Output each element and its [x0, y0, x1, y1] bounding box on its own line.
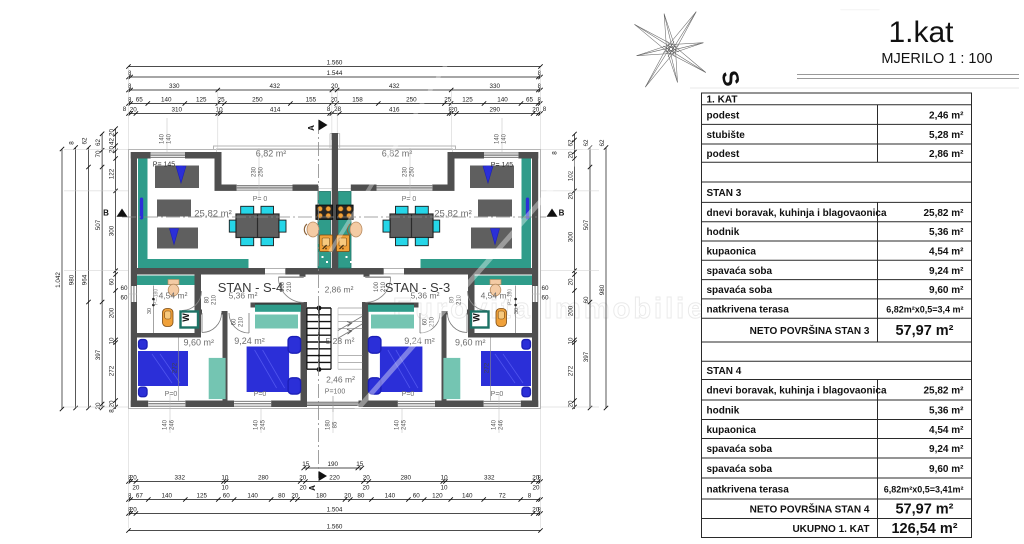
- svg-text:dnevi boravak, kuhinja i blago: dnevi boravak, kuhinja i blagovaonica: [707, 386, 887, 397]
- svg-text:20: 20: [331, 83, 339, 90]
- svg-text:9,24 m²: 9,24 m²: [929, 266, 964, 277]
- svg-text:250: 250: [406, 96, 417, 103]
- svg-text:42: 42: [108, 138, 115, 146]
- svg-text:8: 8: [538, 83, 542, 90]
- svg-text:6,82 m²: 6,82 m²: [382, 149, 413, 159]
- svg-text:20: 20: [95, 402, 102, 410]
- svg-text:125: 125: [197, 492, 208, 499]
- svg-text:964: 964: [81, 274, 88, 285]
- svg-text:210: 210: [287, 281, 293, 292]
- svg-text:8: 8: [538, 70, 542, 77]
- svg-text:P= 145: P= 145: [153, 162, 175, 169]
- svg-text:podest: podest: [707, 110, 740, 121]
- svg-text:20: 20: [108, 400, 115, 408]
- svg-text:4,54 m²: 4,54 m²: [929, 425, 964, 436]
- svg-text:1.504: 1.504: [327, 506, 343, 513]
- svg-text:62: 62: [81, 137, 88, 145]
- svg-text:140: 140: [385, 492, 396, 499]
- svg-text:246: 246: [498, 419, 504, 430]
- svg-text:180: 180: [326, 419, 332, 430]
- svg-text:414: 414: [270, 106, 281, 113]
- svg-text:246: 246: [169, 419, 175, 430]
- svg-text:5,36 m²: 5,36 m²: [411, 291, 440, 301]
- svg-text:6,82 m²: 6,82 m²: [256, 149, 287, 159]
- svg-text:9,60 m²: 9,60 m²: [455, 338, 486, 348]
- svg-text:30: 30: [514, 308, 520, 314]
- svg-text:P= 0: P= 0: [402, 196, 417, 203]
- svg-text:10: 10: [440, 485, 448, 492]
- svg-text:210: 210: [238, 316, 244, 327]
- svg-text:spavaća soba: spavaća soba: [707, 266, 773, 277]
- svg-text:60: 60: [423, 318, 429, 325]
- svg-text:8: 8: [123, 106, 127, 113]
- svg-text:natkrivena terasa: natkrivena terasa: [707, 484, 790, 495]
- svg-text:250: 250: [252, 96, 263, 103]
- svg-text:A: A: [307, 125, 316, 131]
- svg-text:310: 310: [172, 106, 183, 113]
- svg-text:20: 20: [130, 474, 138, 481]
- svg-text:200: 200: [567, 305, 574, 316]
- svg-text:5,36 m²: 5,36 m²: [929, 406, 964, 417]
- svg-text:432: 432: [270, 83, 281, 90]
- svg-text:62: 62: [599, 139, 606, 147]
- svg-text:1. KAT: 1. KAT: [707, 95, 738, 106]
- svg-text:20: 20: [567, 192, 574, 200]
- svg-text:natkrivena terasa: natkrivena terasa: [707, 304, 790, 315]
- svg-text:220: 220: [329, 474, 340, 481]
- svg-text:25,82 m²: 25,82 m²: [923, 208, 964, 219]
- svg-text:60: 60: [541, 285, 549, 292]
- svg-text:290: 290: [490, 106, 501, 113]
- svg-text:126,54 m²: 126,54 m²: [891, 521, 957, 537]
- svg-text:20: 20: [299, 474, 307, 481]
- svg-text:80: 80: [205, 296, 211, 303]
- svg-text:57,97 m²: 57,97 m²: [895, 323, 953, 339]
- svg-text:dnevi boravak, kuhinja i blago: dnevi boravak, kuhinja i blagovaonica: [707, 208, 887, 219]
- svg-text:250: 250: [409, 166, 415, 177]
- svg-text:2,46 m²: 2,46 m²: [929, 110, 964, 121]
- svg-text:10: 10: [567, 337, 574, 345]
- svg-text:10: 10: [441, 474, 449, 481]
- svg-text:245: 245: [260, 419, 266, 430]
- svg-text:125: 125: [462, 96, 473, 103]
- svg-text:9,60 m²: 9,60 m²: [183, 338, 214, 348]
- svg-text:80: 80: [278, 492, 286, 499]
- svg-text:2,86 m²: 2,86 m²: [929, 149, 964, 160]
- svg-text:6,82m²x0,5=3,4 m²: 6,82m²x0,5=3,4 m²: [886, 304, 963, 314]
- svg-text:B: B: [559, 209, 565, 218]
- svg-text:280: 280: [401, 474, 412, 481]
- svg-text:300: 300: [108, 225, 115, 236]
- svg-text:980: 980: [599, 284, 606, 295]
- svg-text:20: 20: [344, 492, 352, 499]
- svg-text:280: 280: [258, 474, 269, 481]
- svg-text:25: 25: [218, 96, 226, 103]
- svg-text:272: 272: [108, 365, 115, 376]
- svg-text:62: 62: [95, 139, 102, 147]
- svg-text:507: 507: [95, 219, 102, 230]
- svg-text:122: 122: [108, 168, 115, 179]
- svg-text:330: 330: [490, 83, 501, 90]
- svg-text:20: 20: [567, 278, 574, 286]
- svg-text:1.042: 1.042: [55, 272, 62, 288]
- svg-text:9,24 m²: 9,24 m²: [234, 336, 265, 346]
- svg-text:5,28 m²: 5,28 m²: [929, 130, 964, 141]
- svg-text:200: 200: [108, 307, 115, 318]
- svg-text:P= 145: P= 145: [491, 162, 513, 169]
- svg-text:8: 8: [543, 106, 547, 113]
- svg-text:stubište: stubište: [707, 130, 746, 141]
- svg-text:60: 60: [108, 278, 115, 286]
- svg-text:180: 180: [316, 492, 327, 499]
- svg-text:140: 140: [162, 492, 173, 499]
- svg-text:1.560: 1.560: [327, 59, 343, 66]
- svg-text:20: 20: [567, 400, 574, 408]
- svg-text:2,86 m²: 2,86 m²: [325, 285, 354, 295]
- svg-text:25,82 m²: 25,82 m²: [434, 209, 472, 220]
- svg-text:100: 100: [280, 281, 286, 292]
- svg-text:140: 140: [462, 492, 473, 499]
- svg-text:140: 140: [495, 133, 501, 144]
- svg-text:10: 10: [216, 106, 224, 113]
- svg-text:272: 272: [567, 365, 574, 376]
- svg-text:20: 20: [130, 106, 138, 113]
- svg-text:20: 20: [291, 492, 299, 499]
- svg-text:65: 65: [136, 96, 144, 103]
- svg-text:60: 60: [223, 492, 231, 499]
- svg-text:272: 272: [172, 362, 179, 373]
- svg-text:140: 140: [166, 133, 172, 144]
- svg-text:70: 70: [95, 150, 102, 158]
- svg-text:8: 8: [538, 506, 542, 513]
- svg-text:1.544: 1.544: [327, 70, 343, 77]
- svg-text:245: 245: [401, 419, 407, 430]
- svg-text:4,54 m²: 4,54 m²: [481, 291, 510, 301]
- svg-text:8: 8: [538, 474, 542, 481]
- svg-text:980: 980: [68, 274, 75, 285]
- svg-text:1.kat: 1.kat: [888, 16, 954, 49]
- svg-text:140: 140: [497, 96, 508, 103]
- svg-text:P=0: P=0: [165, 391, 178, 398]
- svg-text:8: 8: [68, 141, 75, 145]
- svg-text:8: 8: [528, 492, 532, 499]
- svg-text:120: 120: [432, 492, 443, 499]
- svg-text:140: 140: [163, 419, 169, 430]
- svg-text:230: 230: [252, 166, 258, 177]
- svg-text:332: 332: [174, 474, 185, 481]
- svg-text:507: 507: [583, 219, 590, 230]
- svg-text:67: 67: [136, 492, 144, 499]
- svg-text:9,60 m²: 9,60 m²: [929, 464, 964, 475]
- svg-text:62: 62: [567, 139, 574, 147]
- svg-text:397: 397: [95, 349, 102, 360]
- svg-text:72: 72: [499, 492, 507, 499]
- svg-text:60: 60: [541, 295, 549, 302]
- svg-text:140: 140: [254, 419, 260, 430]
- svg-text:30: 30: [147, 308, 153, 314]
- svg-text:230: 230: [403, 166, 409, 177]
- svg-text:25,82 m²: 25,82 m²: [194, 209, 232, 220]
- svg-text:210: 210: [211, 294, 217, 305]
- svg-text:20: 20: [362, 485, 370, 492]
- svg-text:P=0: P=0: [402, 391, 415, 398]
- svg-text:60: 60: [120, 285, 128, 292]
- svg-text:20: 20: [567, 151, 574, 159]
- svg-text:65: 65: [526, 96, 534, 103]
- svg-text:432: 432: [389, 83, 400, 90]
- svg-text:15: 15: [302, 461, 310, 468]
- svg-text:STAN 3: STAN 3: [707, 188, 742, 199]
- svg-text:2,46 m²: 2,46 m²: [326, 375, 355, 385]
- svg-text:20: 20: [363, 474, 371, 481]
- svg-text:B: B: [103, 209, 109, 218]
- svg-text:25,82 m²: 25,82 m²: [923, 386, 964, 397]
- svg-text:8: 8: [108, 409, 115, 413]
- svg-text:P= 0: P= 0: [253, 196, 268, 203]
- svg-text:155: 155: [306, 96, 317, 103]
- svg-text:300: 300: [567, 231, 574, 242]
- svg-text:_______: _______: [840, 0, 880, 11]
- svg-text:8: 8: [537, 96, 541, 103]
- svg-text:397: 397: [583, 351, 590, 362]
- svg-text:60: 60: [232, 318, 238, 325]
- svg-text:8: 8: [552, 151, 559, 155]
- svg-text:60: 60: [583, 296, 590, 304]
- svg-text:NETO POVRŠINA STAN 4: NETO POVRŠINA STAN 4: [750, 503, 870, 516]
- svg-text:kupaonica: kupaonica: [707, 425, 757, 436]
- svg-text:hodnik: hodnik: [707, 406, 740, 417]
- svg-text:10: 10: [108, 337, 115, 345]
- svg-text:140: 140: [247, 492, 258, 499]
- svg-text:8: 8: [327, 106, 331, 113]
- svg-text:MJERILO 1 : 100: MJERILO 1 : 100: [881, 51, 992, 67]
- svg-text:NETO POVRŠINA STAN 3: NETO POVRŠINA STAN 3: [750, 324, 870, 337]
- svg-text:272: 272: [484, 362, 491, 373]
- svg-text:60: 60: [413, 492, 421, 499]
- svg-text:9,60 m²: 9,60 m²: [929, 285, 964, 296]
- svg-text:20: 20: [130, 506, 138, 513]
- svg-text:5,36 m²: 5,36 m²: [229, 291, 258, 301]
- svg-text:20: 20: [532, 106, 540, 113]
- svg-text:4,54 m²: 4,54 m²: [159, 291, 188, 301]
- svg-text:spavaća soba: spavaća soba: [707, 444, 773, 455]
- svg-text:125: 125: [196, 96, 207, 103]
- svg-text:spavaća soba: spavaća soba: [707, 464, 773, 475]
- svg-text:5,36 m²: 5,36 m²: [929, 227, 964, 238]
- svg-text:158: 158: [352, 96, 363, 103]
- svg-text:210: 210: [381, 281, 387, 292]
- svg-text:20: 20: [532, 485, 540, 492]
- svg-text:W: W: [472, 313, 482, 322]
- svg-text:P=0: P=0: [491, 391, 504, 398]
- svg-text:20: 20: [108, 129, 115, 137]
- svg-text:100: 100: [374, 281, 380, 292]
- svg-text:5,28 m²: 5,28 m²: [326, 336, 355, 346]
- svg-text:UKUPNO 1. KAT: UKUPNO 1. KAT: [792, 524, 869, 535]
- svg-text:P=100: P=100: [325, 389, 346, 396]
- svg-text:1.560: 1.560: [327, 523, 343, 530]
- svg-text:190: 190: [328, 461, 339, 468]
- svg-text:332: 332: [484, 474, 495, 481]
- svg-text:140: 140: [160, 133, 166, 144]
- svg-text:10: 10: [221, 474, 229, 481]
- svg-text:140: 140: [161, 96, 172, 103]
- svg-text:STAN 4: STAN 4: [707, 366, 742, 377]
- svg-text:spavaća soba: spavaća soba: [707, 285, 773, 296]
- svg-text:140: 140: [501, 133, 507, 144]
- svg-text:20: 20: [330, 96, 338, 103]
- svg-text:P=0: P=0: [254, 391, 267, 398]
- svg-text:85: 85: [332, 421, 338, 428]
- svg-text:20: 20: [299, 485, 307, 492]
- svg-text:80: 80: [357, 492, 365, 499]
- svg-text:250: 250: [258, 166, 264, 177]
- svg-text:140: 140: [492, 419, 498, 430]
- svg-text:W: W: [181, 313, 191, 322]
- svg-text:10: 10: [221, 485, 229, 492]
- svg-text:kupaonica: kupaonica: [707, 247, 757, 258]
- svg-text:9,24 m²: 9,24 m²: [929, 444, 964, 455]
- svg-text:20: 20: [132, 485, 140, 492]
- svg-text:hodnik: hodnik: [707, 227, 740, 238]
- svg-text:140: 140: [395, 419, 401, 430]
- svg-text:6,82m²x0,5=3,41m²: 6,82m²x0,5=3,41m²: [884, 484, 964, 494]
- svg-text:25: 25: [444, 96, 452, 103]
- svg-text:15: 15: [356, 461, 364, 468]
- svg-text:A: A: [308, 485, 317, 491]
- svg-text:330: 330: [169, 83, 180, 90]
- svg-text:57,97 m²: 57,97 m²: [895, 502, 953, 518]
- svg-text:podest: podest: [707, 149, 740, 160]
- svg-text:416: 416: [389, 106, 400, 113]
- svg-text:28: 28: [334, 106, 342, 113]
- svg-text:4,54 m²: 4,54 m²: [929, 247, 964, 258]
- svg-text:60: 60: [120, 295, 128, 302]
